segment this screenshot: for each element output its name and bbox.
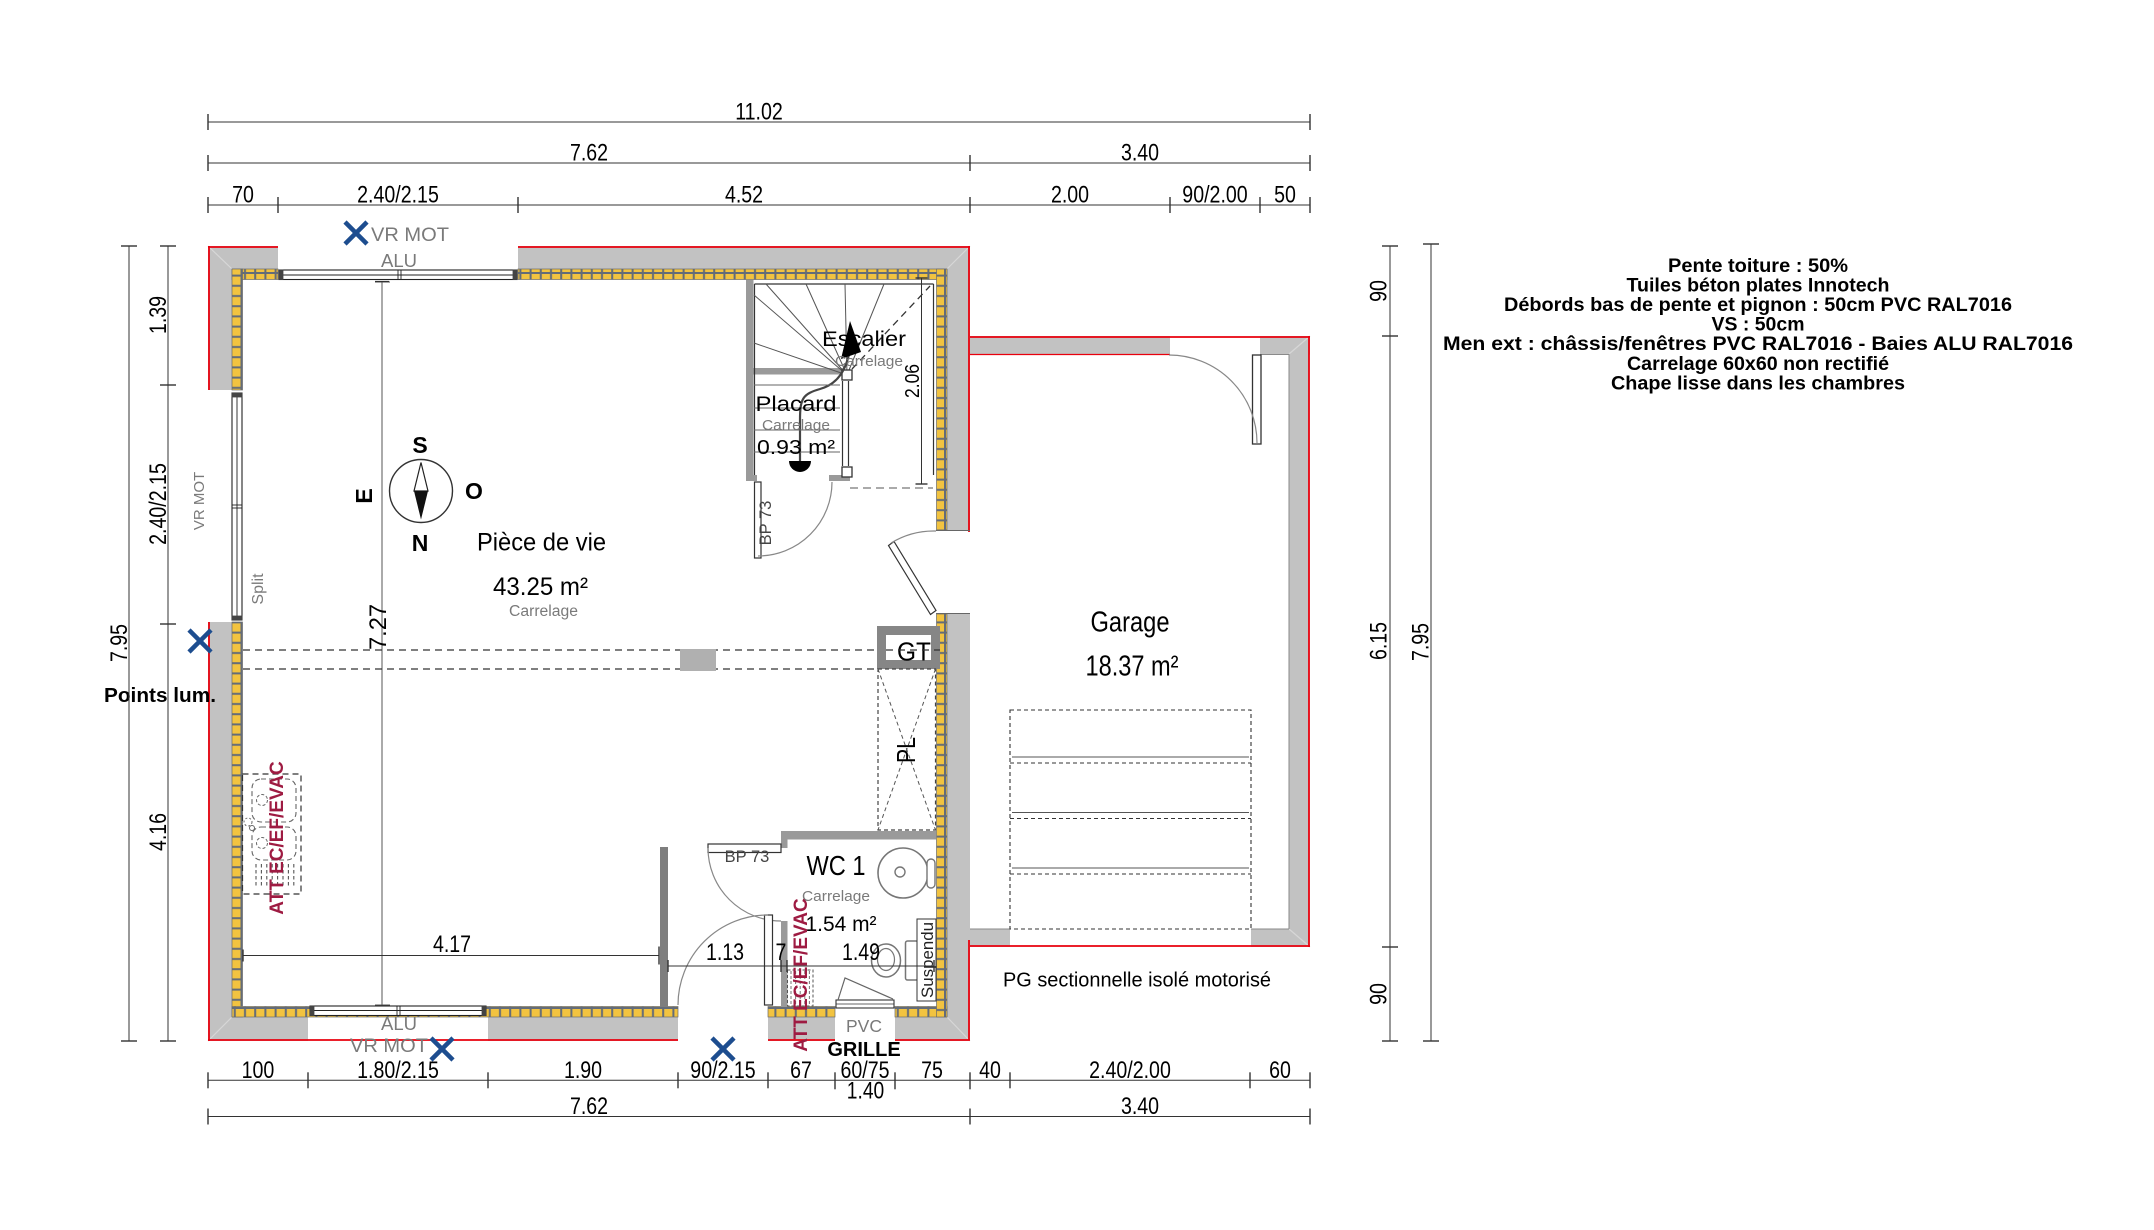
svg-text:Pièce de vie: Pièce de vie [477,530,606,557]
svg-text:ATT EC/EF/EVAC: ATT EC/EF/EVAC [267,761,288,915]
svg-text:7.62: 7.62 [570,1093,608,1120]
svg-text:2.40/2.15: 2.40/2.15 [145,463,172,545]
svg-text:1.80/2.15: 1.80/2.15 [357,1057,439,1084]
svg-text:75: 75 [921,1057,943,1084]
svg-text:4.17: 4.17 [433,931,471,958]
svg-text:PVC: PVC [846,1016,882,1036]
svg-text:40: 40 [979,1057,1001,1084]
svg-text:2.00: 2.00 [1051,182,1089,209]
svg-text:90: 90 [1366,280,1393,302]
svg-text:6.15: 6.15 [1366,622,1393,660]
svg-text:1.39: 1.39 [145,296,172,334]
svg-text:Carrelage: Carrelage [802,888,870,905]
svg-text:100: 100 [242,1057,275,1084]
svg-text:ATT EC/EF/EVAC: ATT EC/EF/EVAC [791,898,812,1052]
svg-text:Placard: Placard [756,392,837,416]
svg-text:S: S [412,432,427,458]
svg-text:7.95: 7.95 [106,624,133,662]
svg-text:PL: PL [891,737,921,763]
svg-text:E: E [351,488,377,503]
svg-text:Garage: Garage [1091,607,1170,639]
svg-text:60: 60 [1269,1057,1291,1084]
svg-text:PG sectionnelle isolé motorisé: PG sectionnelle isolé motorisé [1003,970,1271,992]
svg-text:67: 67 [790,1057,812,1084]
svg-text:7.62: 7.62 [570,140,608,167]
svg-text:2.40/2.15: 2.40/2.15 [357,182,439,209]
svg-text:90/2.00: 90/2.00 [1182,182,1247,209]
svg-text:Carrelage: Carrelage [762,417,830,434]
svg-text:WC 1: WC 1 [807,850,866,881]
svg-text:50: 50 [1274,182,1296,209]
svg-text:N: N [412,530,429,556]
svg-text:70: 70 [232,182,254,209]
svg-text:VR MOT: VR MOT [191,472,208,530]
svg-text:VR MOT: VR MOT [371,225,449,246]
svg-text:7.27: 7.27 [365,604,392,650]
svg-text:VR MOT: VR MOT [350,1036,428,1057]
svg-text:O: O [465,478,483,504]
svg-text:Carrelage: Carrelage [835,353,903,370]
svg-text:ALU: ALU [381,1013,417,1034]
svg-text:90: 90 [1366,983,1393,1005]
svg-text:3.40: 3.40 [1121,140,1159,167]
svg-text:1.40: 1.40 [847,1078,884,1105]
svg-text:7: 7 [776,939,787,966]
svg-text:Escalier: Escalier [822,327,906,351]
svg-text:Carrelage: Carrelage [509,603,578,620]
svg-text:Chape lisse dans les chambres: Chape lisse dans les chambres [1611,372,1905,394]
svg-text:GT: GT [897,637,931,667]
svg-text:7.95: 7.95 [1408,623,1435,661]
svg-text:1.90: 1.90 [564,1057,602,1084]
svg-text:4.52: 4.52 [725,182,763,209]
svg-text:3.40: 3.40 [1121,1093,1159,1120]
svg-text:18.37 m²: 18.37 m² [1086,651,1179,683]
svg-text:Points lum.: Points lum. [104,685,216,707]
svg-text:1.13: 1.13 [706,939,744,966]
svg-text:BP 73: BP 73 [725,848,770,866]
svg-text:Split: Split [250,573,267,605]
svg-text:1.49: 1.49 [842,939,880,966]
svg-text:BP 73: BP 73 [757,501,775,546]
svg-text:ALU: ALU [381,250,417,271]
svg-text:1.54 m²: 1.54 m² [806,913,877,936]
svg-text:0.93 m²: 0.93 m² [757,437,835,459]
svg-text:43.25 m²: 43.25 m² [493,574,588,601]
svg-text:4.16: 4.16 [145,813,172,851]
svg-text:2.06: 2.06 [902,364,924,398]
svg-text:2.40/2.00: 2.40/2.00 [1089,1057,1171,1084]
svg-text:90/2.15: 90/2.15 [690,1057,755,1084]
svg-text:11.02: 11.02 [735,99,783,126]
